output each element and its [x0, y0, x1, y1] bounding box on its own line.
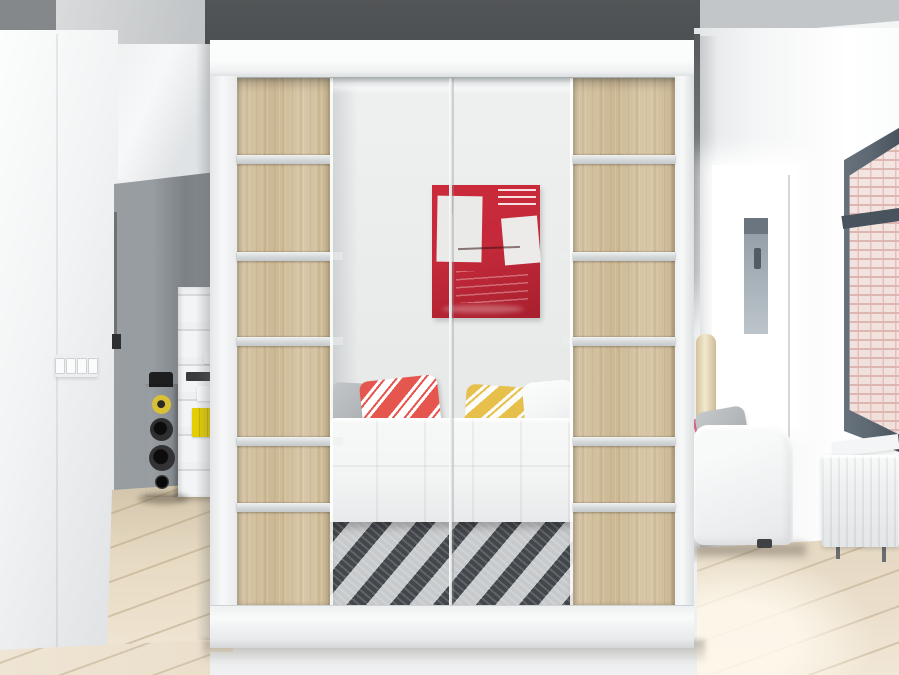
aluminum-strip [573, 437, 675, 446]
wardrobe-left-stile [210, 76, 237, 648]
artwork-title-scribble [498, 189, 536, 209]
right-sofa-leg [757, 539, 772, 548]
right-sofa [694, 425, 793, 545]
wardrobe-plinth [210, 605, 694, 648]
wardrobe-door-panel-oak-left[interactable] [237, 78, 330, 605]
aluminum-strip [573, 155, 675, 164]
mirror-door-split-shadow [452, 78, 454, 605]
speaker-port-icon [155, 475, 169, 489]
wardrobe-left-wall-shadow [196, 44, 210, 640]
artwork-white-block-right [501, 216, 541, 266]
wardrobe-top-frame [210, 40, 694, 78]
speaker-driver-mid-icon [150, 418, 173, 441]
tall-window [834, 116, 899, 466]
left-wall-corner-line [56, 34, 58, 650]
switch-key [77, 358, 87, 374]
doorframe-edge-line [114, 212, 117, 334]
aluminum-strip [573, 252, 675, 261]
aluminum-strip [237, 437, 330, 446]
artwork-script-marks [456, 271, 528, 303]
wardrobe-door-panel-oak-right[interactable] [573, 78, 675, 605]
floor-right [697, 536, 899, 675]
aluminum-strip [237, 155, 330, 164]
window-handle-icon [754, 248, 761, 269]
door-hinge-mark [112, 334, 121, 349]
switch-key [88, 358, 98, 374]
mirror-left-edge [330, 78, 333, 605]
aluminum-strip [237, 503, 330, 512]
switch-key [66, 358, 76, 374]
hifi-speaker [145, 384, 178, 497]
artwork-white-smudge [442, 305, 524, 313]
slim-window-band [744, 218, 768, 334]
aluminum-strip [237, 337, 330, 346]
left-wall [0, 30, 118, 652]
speaker-driver-woofer-icon [149, 445, 175, 471]
wardrobe-right-stile [675, 76, 694, 648]
speaker-driver-tweeter-icon [152, 395, 171, 414]
aluminum-strip [573, 337, 675, 346]
accent-wall-dark [205, 0, 702, 44]
slim-window-top [744, 218, 768, 234]
light-switch [55, 355, 98, 377]
wardrobe [210, 40, 694, 648]
artwork-white-block-left [436, 196, 482, 263]
radiator [822, 455, 899, 547]
aluminum-strip [237, 252, 330, 261]
switch-key [55, 358, 65, 374]
room-photo [0, 0, 899, 675]
door-track-shadow [237, 77, 675, 83]
wardrobe-door-mirror[interactable] [330, 78, 573, 605]
aluminum-strip [573, 503, 675, 512]
radiator-leg [882, 545, 886, 562]
window-glass-brick-view [834, 116, 899, 466]
